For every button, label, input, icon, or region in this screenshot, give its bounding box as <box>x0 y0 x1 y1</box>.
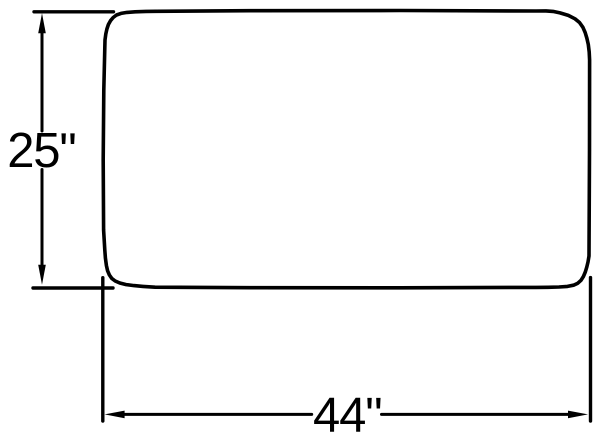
svg-text:44": 44" <box>313 389 381 443</box>
svg-text:25": 25" <box>7 124 75 178</box>
